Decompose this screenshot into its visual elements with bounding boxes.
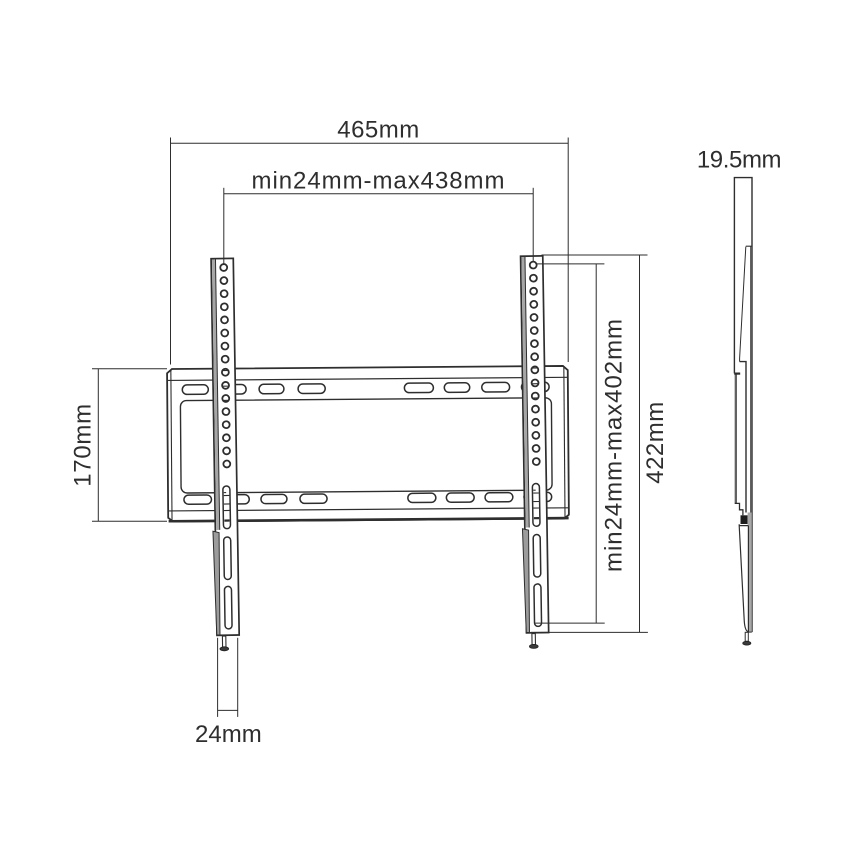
svg-text:170mm: 170mm xyxy=(70,403,97,487)
svg-text:19.5mm: 19.5mm xyxy=(697,147,781,174)
svg-text:min24mm-max438mm: min24mm-max438mm xyxy=(252,168,506,195)
svg-text:422mm: 422mm xyxy=(642,401,669,484)
svg-text:465mm: 465mm xyxy=(337,117,420,144)
svg-text:24mm: 24mm xyxy=(195,721,262,748)
svg-text:min24mm-max402mm: min24mm-max402mm xyxy=(601,318,628,572)
